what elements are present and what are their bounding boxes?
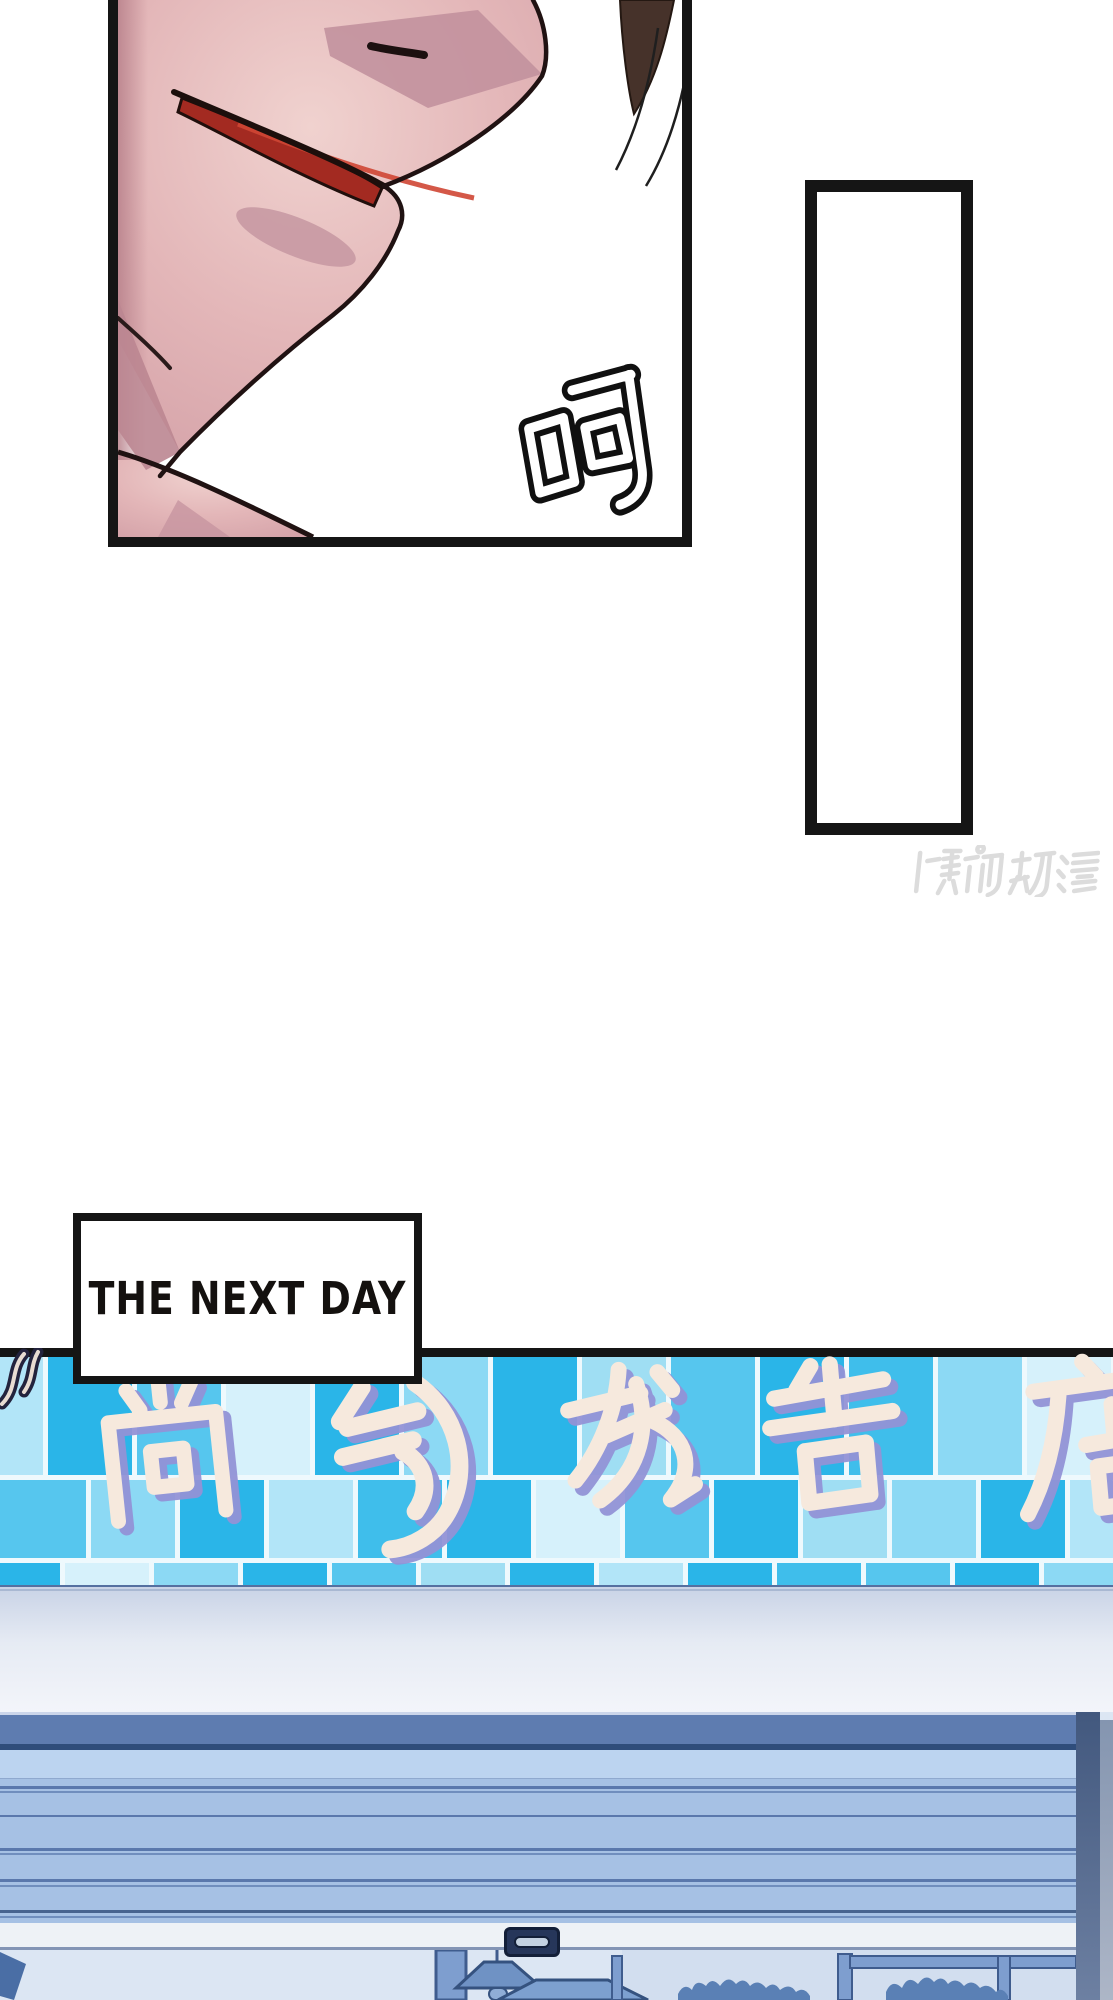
shutter-slat <box>0 1848 1076 1851</box>
wall-tile <box>0 1480 86 1558</box>
wall-tile <box>1070 1480 1113 1558</box>
wall-tile <box>688 1563 772 1585</box>
shutter-slat <box>0 1910 1076 1913</box>
empty-speech-text <box>817 192 818 193</box>
shutter-slat <box>0 1916 1076 1918</box>
wall-tile <box>536 1480 620 1558</box>
wall-tile <box>493 1357 577 1475</box>
door-frame <box>612 1956 622 2000</box>
interior-silhouettes <box>0 1950 1076 2000</box>
wall-tile <box>243 1563 327 1585</box>
shutter-slat <box>0 1853 1076 1855</box>
wall-tile <box>1044 1563 1113 1585</box>
wm-char-3 <box>1010 853 1055 897</box>
tile-wall <box>0 1357 1113 1585</box>
manga-page: 呵 <box>0 0 1113 2000</box>
wall-tile <box>955 1563 1039 1585</box>
wall-tile <box>671 1357 755 1475</box>
wm-char-2 <box>962 846 1003 895</box>
face-illustration <box>118 0 682 537</box>
wall-tile <box>269 1480 353 1558</box>
wall-tile <box>981 1480 1065 1558</box>
wall-tile <box>892 1480 976 1558</box>
wall-tile <box>760 1357 844 1475</box>
lintel-band <box>0 1585 1113 1712</box>
wall-tile <box>1027 1357 1111 1475</box>
wall-edge-right <box>1100 1720 1113 2000</box>
wall-tile <box>332 1563 416 1585</box>
door-frame-right <box>1076 1712 1100 2000</box>
tile-row <box>0 1480 1113 1558</box>
wall-tile <box>849 1357 933 1475</box>
wall-tile <box>599 1563 683 1585</box>
shutter-handle <box>504 1927 560 1957</box>
wall-tile <box>938 1357 1022 1475</box>
shutter-slat <box>0 1885 1076 1887</box>
shutter-slat <box>0 1879 1076 1882</box>
hair-strand <box>620 0 674 114</box>
roller-shutter <box>0 1750 1076 1923</box>
interior-post <box>436 1950 466 2000</box>
leaf-silhouette <box>0 1952 26 2000</box>
sfx-he-icon <box>524 374 645 513</box>
shutter-housing <box>0 1712 1100 1750</box>
watermark-glyphs <box>905 845 1100 897</box>
shutter-slat <box>0 1791 1076 1793</box>
caption-text: THE NEXT DAY <box>89 1272 407 1325</box>
handle-slot <box>514 1936 550 1948</box>
wall-tile <box>803 1480 887 1558</box>
wall-tile <box>714 1480 798 1558</box>
wall-tile <box>65 1563 149 1585</box>
wall-tile <box>358 1480 442 1558</box>
wall-tile <box>447 1480 531 1558</box>
wall-tile <box>180 1480 264 1558</box>
face-closeup-panel: 呵 <box>108 0 692 547</box>
tile-row <box>0 1563 1113 1585</box>
wall-tile <box>154 1563 238 1585</box>
wall-tile <box>866 1563 950 1585</box>
wall-tile <box>777 1563 861 1585</box>
shelf-beam <box>850 1956 1076 1968</box>
shop-interior <box>0 1950 1076 2000</box>
wall-tile <box>0 1563 60 1585</box>
wall-tile <box>625 1480 709 1558</box>
wall-tile <box>421 1563 505 1585</box>
empty-speech-panel <box>805 180 973 835</box>
wall-tile <box>582 1357 666 1475</box>
wm-char-4 <box>1056 853 1098 891</box>
shutter-slat <box>0 1815 1076 1817</box>
caption-box: THE NEXT DAY <box>73 1213 422 1384</box>
wall-tile <box>91 1480 175 1558</box>
shutter-slat <box>0 1786 1076 1789</box>
wall-tile <box>510 1563 594 1585</box>
storefront-panel: 尚气龙告店 <box>0 1348 1113 2000</box>
wm-char-1 <box>916 851 960 893</box>
tencent-comics-watermark: 腾讯动漫 <box>905 845 1100 897</box>
wall-tile <box>0 1357 43 1475</box>
